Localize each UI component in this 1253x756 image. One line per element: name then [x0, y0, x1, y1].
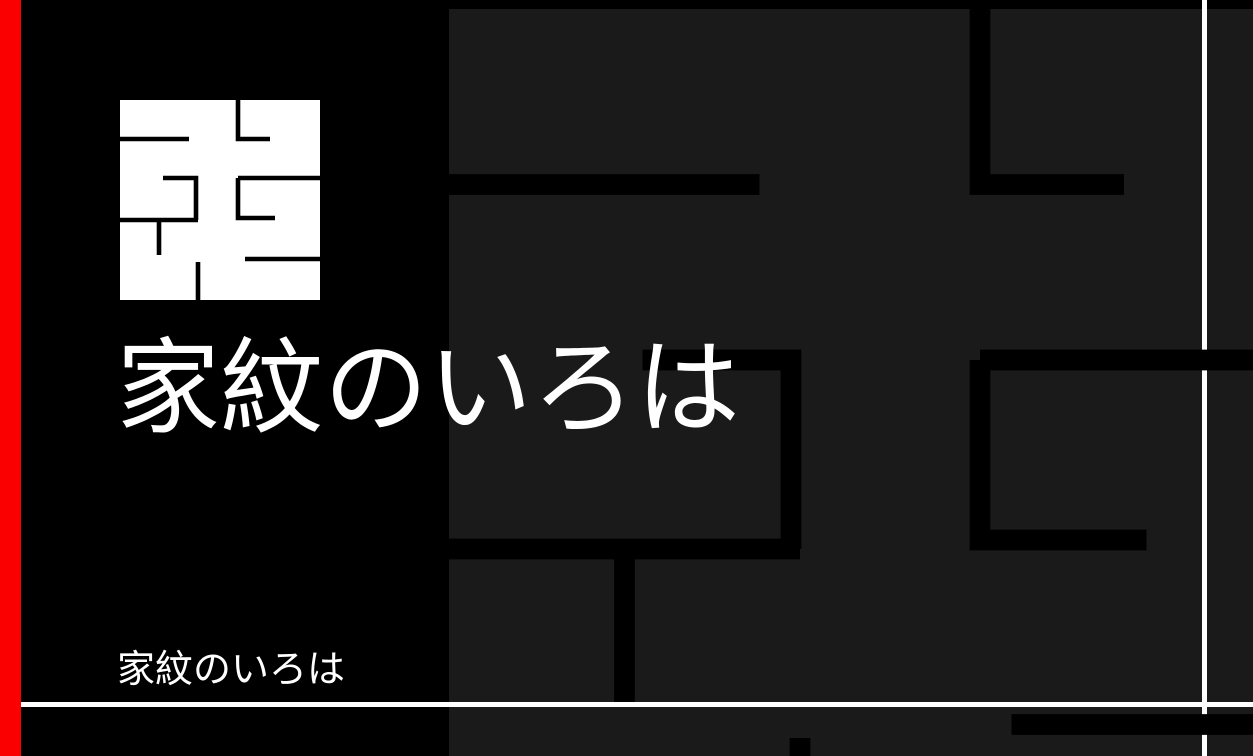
logo-background [120, 100, 320, 300]
frame-horizontal-line [21, 702, 1253, 707]
kamon-maze-logo-icon [120, 100, 320, 300]
red-accent-bar [0, 0, 21, 756]
hero-page: 家紋のいろは 家紋のいろは [0, 0, 1253, 756]
footer-site-title: 家紋のいろは [117, 649, 345, 693]
page-title: 家紋のいろは [116, 331, 740, 449]
